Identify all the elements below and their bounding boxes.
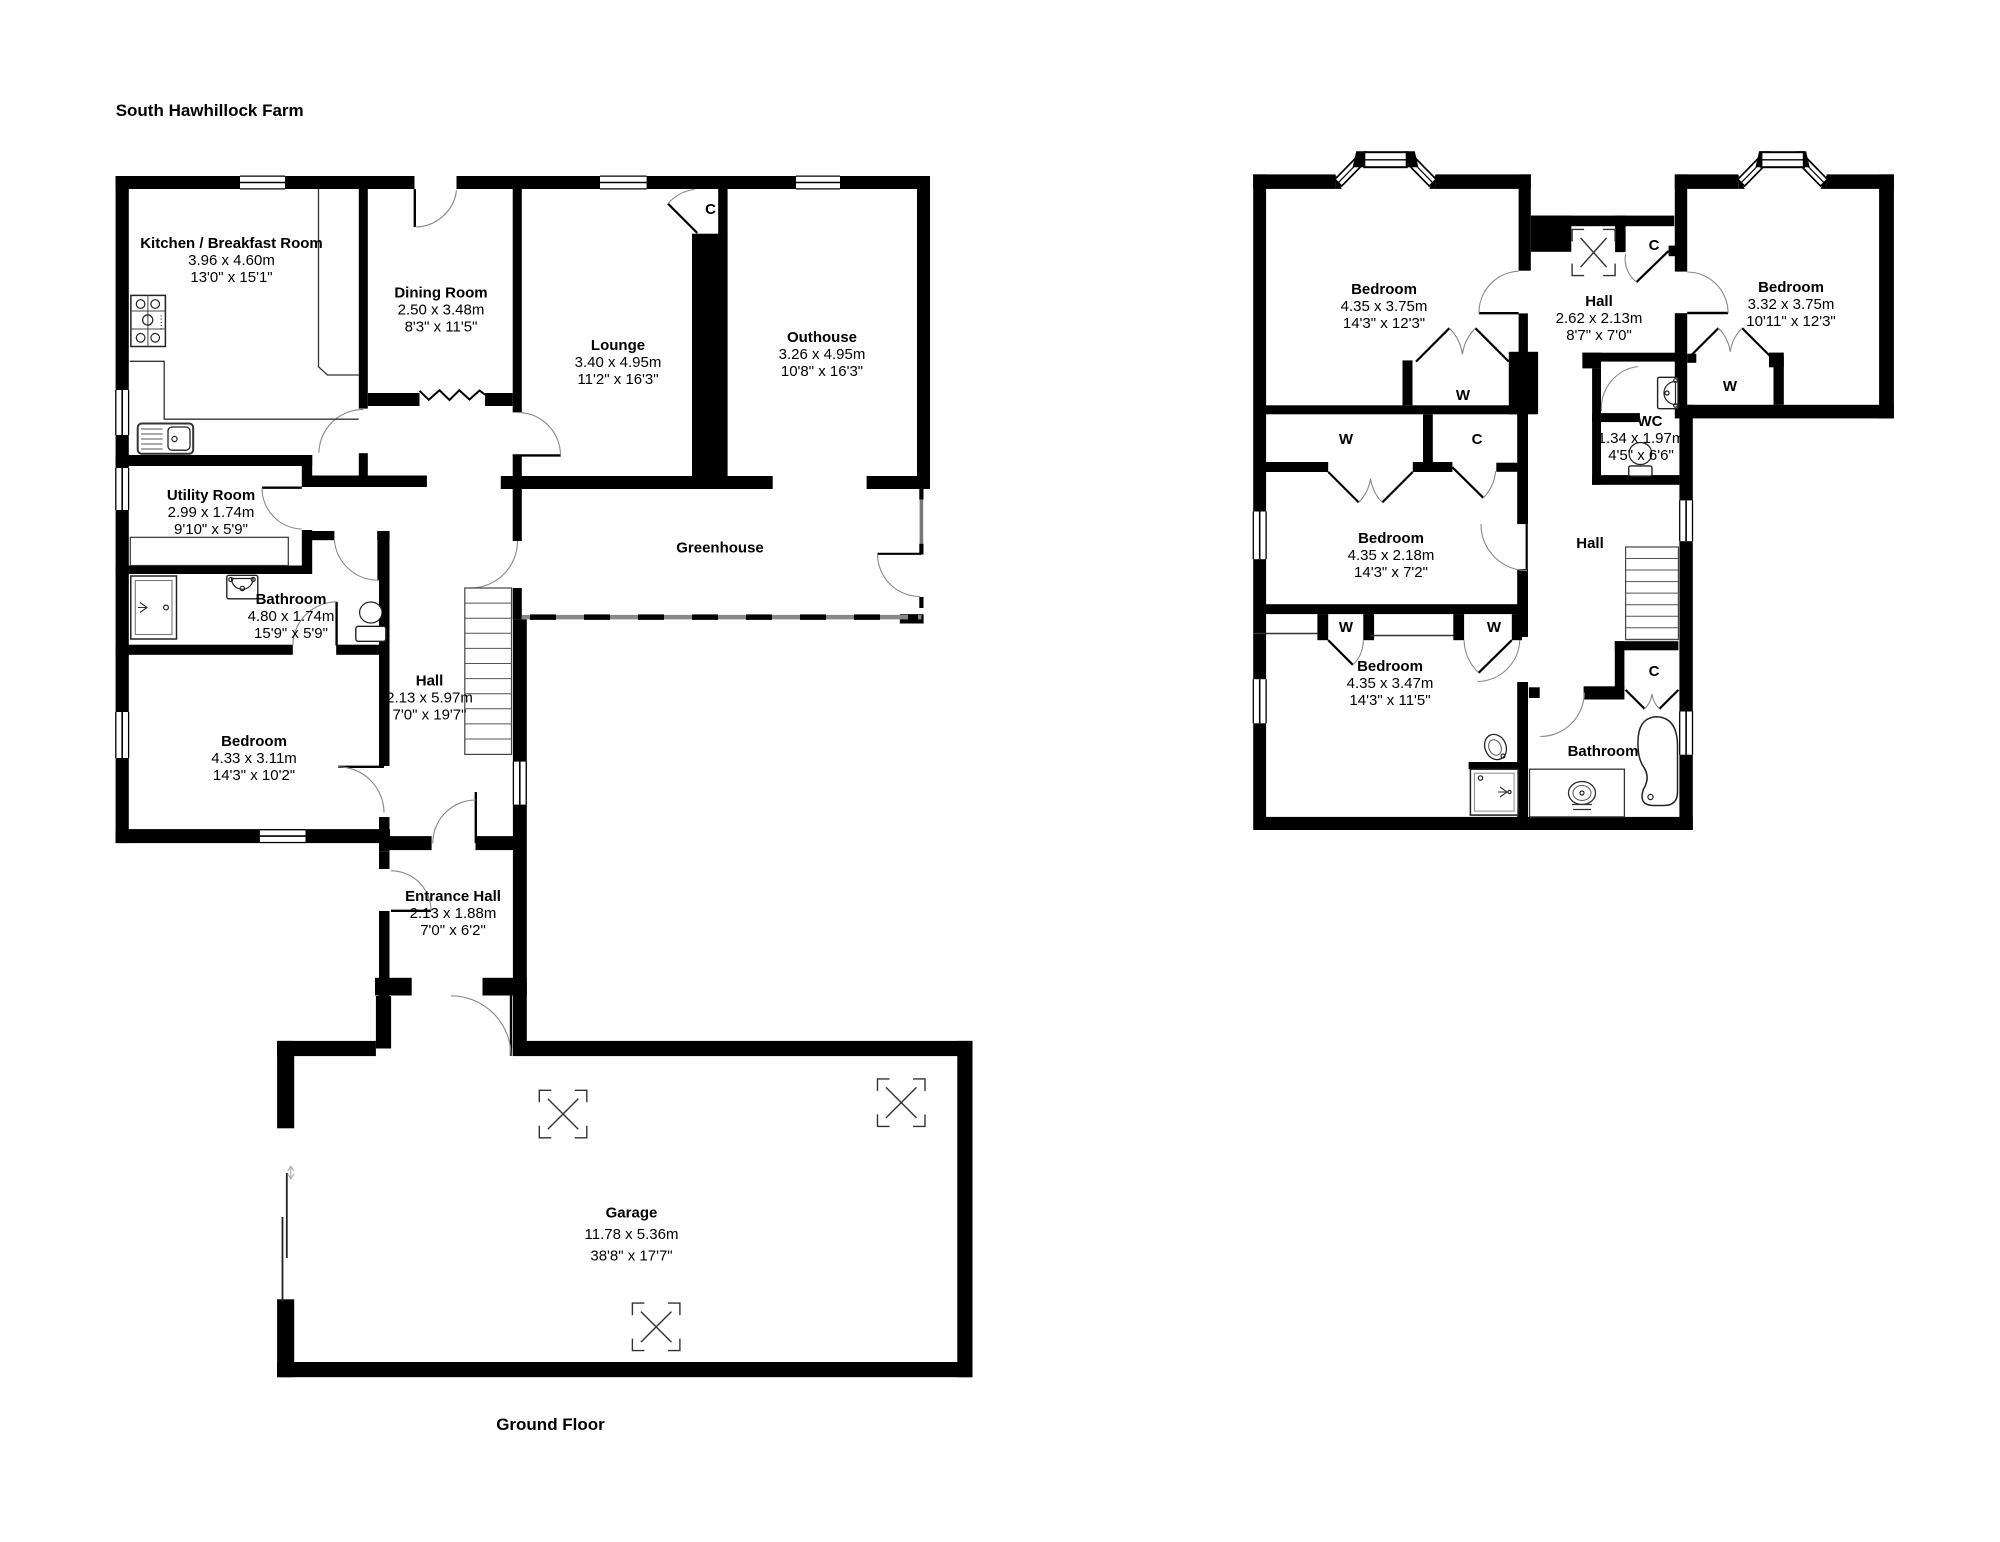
svg-text:W: W (1487, 619, 1502, 636)
svg-text:W: W (1723, 378, 1738, 395)
svg-text:Hall: Hall (1576, 535, 1604, 552)
svg-text:Greenhouse: Greenhouse (676, 540, 764, 557)
svg-text:2.62 x 2.13m: 2.62 x 2.13m (1556, 310, 1643, 327)
svg-text:3.40 x 4.95m: 3.40 x 4.95m (575, 354, 662, 371)
svg-text:38'8" x 17'7": 38'8" x 17'7" (590, 1248, 672, 1265)
svg-text:W: W (1456, 387, 1471, 404)
svg-text:8'3" x 11'5": 8'3" x 11'5" (405, 319, 478, 336)
svg-text:10'8" x 16'3": 10'8" x 16'3" (781, 363, 863, 380)
svg-text:14'3" x 10'2": 14'3" x 10'2" (213, 767, 295, 784)
svg-text:2.13 x 1.88m: 2.13 x 1.88m (410, 905, 497, 922)
svg-text:Garage: Garage (606, 1205, 658, 1222)
svg-text:3.26 x 4.95m: 3.26 x 4.95m (779, 346, 866, 363)
svg-text:Hall: Hall (416, 673, 444, 690)
svg-text:4.35 x 3.75m: 4.35 x 3.75m (1341, 298, 1428, 315)
svg-text:Lounge: Lounge (591, 337, 645, 354)
svg-text:Entrance Hall: Entrance Hall (405, 888, 501, 905)
svg-text:Bedroom: Bedroom (1358, 530, 1424, 547)
svg-text:9'10" x 5'9": 9'10" x 5'9" (174, 521, 248, 538)
svg-text:WC: WC (1638, 413, 1663, 430)
svg-text:C: C (705, 201, 716, 218)
svg-text:Dining Room: Dining Room (394, 285, 487, 302)
svg-text:14'3" x 7'2": 14'3" x 7'2" (1354, 564, 1428, 581)
svg-text:Bedroom: Bedroom (221, 733, 287, 750)
svg-text:Bedroom: Bedroom (1357, 658, 1423, 675)
svg-text:Bathroom: Bathroom (256, 591, 327, 608)
svg-text:7'0" x 19'7": 7'0" x 19'7" (393, 707, 467, 724)
svg-text:3.32 x 3.75m: 3.32 x 3.75m (1748, 296, 1835, 313)
svg-text:1.34 x 1.97m: 1.34 x 1.97m (1598, 430, 1685, 447)
svg-text:Bathroom: Bathroom (1568, 743, 1639, 760)
svg-text:4'5" x 6'6": 4'5" x 6'6" (1608, 447, 1674, 464)
svg-text:W: W (1339, 619, 1354, 636)
svg-text:C: C (1472, 431, 1483, 448)
svg-text:Outhouse: Outhouse (787, 329, 857, 346)
svg-text:Bedroom: Bedroom (1351, 281, 1417, 298)
svg-text:3.96 x 4.60m: 3.96 x 4.60m (188, 252, 275, 269)
svg-text:4.35 x 3.47m: 4.35 x 3.47m (1347, 675, 1434, 692)
svg-text:Hall: Hall (1585, 293, 1613, 310)
svg-text:8'7" x 7'0": 8'7" x 7'0" (1566, 327, 1632, 344)
svg-text:4.33 x 3.11m: 4.33 x 3.11m (211, 750, 297, 767)
svg-text:2.13 x 5.97m: 2.13 x 5.97m (386, 690, 473, 707)
svg-text:11'2" x 16'3": 11'2" x 16'3" (577, 371, 658, 388)
svg-text:13'0" x 15'1": 13'0" x 15'1" (190, 269, 272, 286)
svg-text:Ground Floor: Ground Floor (496, 1415, 605, 1434)
svg-text:2.50 x 3.48m: 2.50 x 3.48m (398, 302, 485, 319)
svg-text:W: W (1339, 431, 1354, 448)
svg-text:14'3" x 11'5": 14'3" x 11'5" (1349, 692, 1430, 709)
svg-text:10'11" x 12'3": 10'11" x 12'3" (1746, 313, 1836, 330)
svg-text:South Hawhillock Farm: South Hawhillock Farm (116, 101, 304, 120)
svg-text:14'3" x 12'3": 14'3" x 12'3" (1343, 315, 1425, 332)
svg-text:Utility Room: Utility Room (167, 487, 255, 504)
svg-text:4.35 x 2.18m: 4.35 x 2.18m (1348, 547, 1435, 564)
svg-text:11.78 x 5.36m: 11.78 x 5.36m (585, 1226, 679, 1243)
svg-text:Kitchen / Breakfast Room: Kitchen / Breakfast Room (140, 235, 323, 252)
svg-text:C: C (1649, 663, 1660, 680)
svg-text:15'9" x 5'9": 15'9" x 5'9" (254, 625, 328, 642)
svg-text:4.80 x 1.74m: 4.80 x 1.74m (248, 608, 335, 625)
svg-text:Bedroom: Bedroom (1758, 279, 1824, 296)
svg-text:7'0" x 6'2": 7'0" x 6'2" (420, 922, 486, 939)
svg-text:2.99 x 1.74m: 2.99 x 1.74m (168, 504, 255, 521)
svg-text:C: C (1649, 237, 1660, 254)
